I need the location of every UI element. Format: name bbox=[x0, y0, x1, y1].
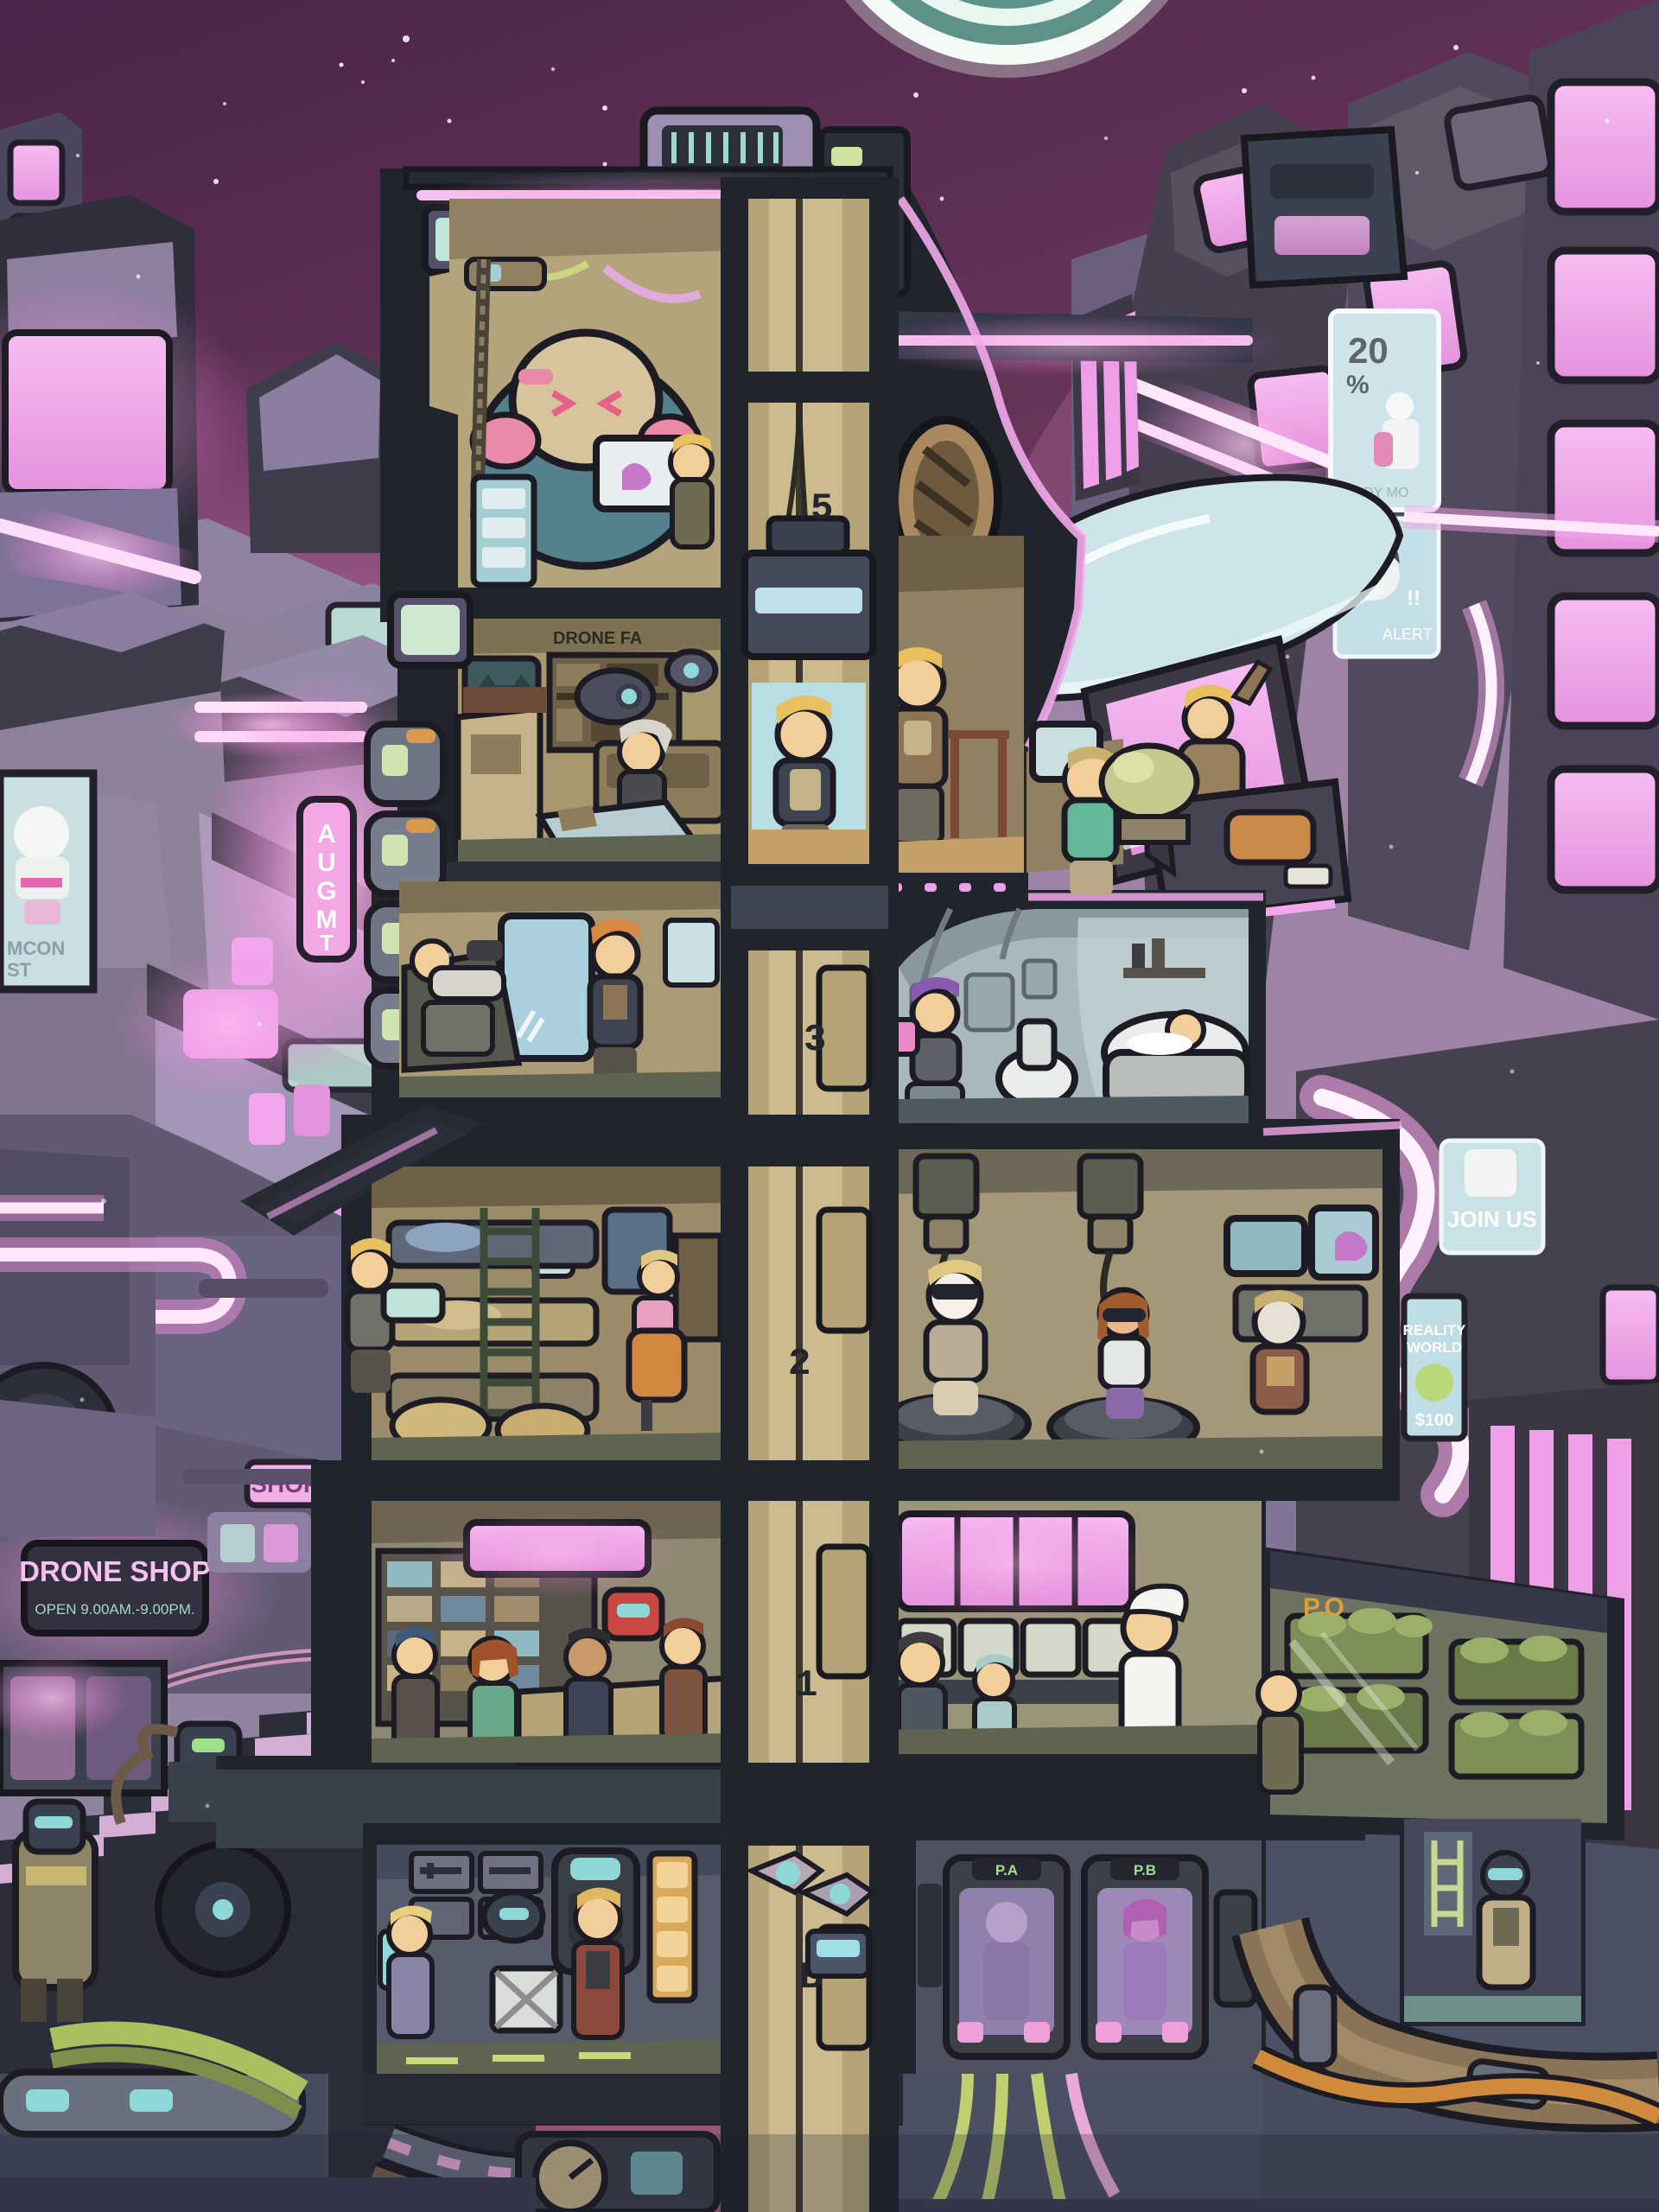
svg-text:3: 3 bbox=[804, 1019, 826, 1062]
svg-text:A: A bbox=[317, 820, 336, 849]
svg-text:P.O: P.O bbox=[1303, 1593, 1344, 1622]
svg-text:2: 2 bbox=[788, 1343, 810, 1386]
svg-text:P.A: P.A bbox=[995, 1862, 1018, 1878]
svg-text:T: T bbox=[320, 930, 334, 956]
svg-text:1: 1 bbox=[795, 1664, 817, 1707]
svg-text:20: 20 bbox=[1348, 330, 1389, 371]
svg-text:%: % bbox=[1346, 371, 1370, 399]
svg-text:WORLD: WORLD bbox=[1407, 1339, 1462, 1356]
svg-text:G: G bbox=[316, 877, 336, 906]
svg-text:5: 5 bbox=[810, 487, 833, 531]
svg-text:ST: ST bbox=[7, 959, 32, 981]
svg-text:$100: $100 bbox=[1415, 1411, 1454, 1430]
svg-text:!!: !! bbox=[1407, 587, 1421, 610]
svg-text:OPEN 9.00AM.-9.00PM.: OPEN 9.00AM.-9.00PM. bbox=[35, 1601, 194, 1618]
svg-text:JOIN US: JOIN US bbox=[1447, 1206, 1537, 1232]
svg-text:MCON: MCON bbox=[7, 938, 65, 959]
svg-text:DRONE SHOP: DRONE SHOP bbox=[19, 1555, 211, 1587]
svg-text:ALERT: ALERT bbox=[1382, 626, 1433, 643]
svg-text:REALITY: REALITY bbox=[1403, 1322, 1466, 1338]
svg-text:P.B: P.B bbox=[1134, 1862, 1156, 1878]
svg-text:DRONE FA: DRONE FA bbox=[553, 629, 642, 648]
svg-text:U: U bbox=[317, 849, 336, 877]
